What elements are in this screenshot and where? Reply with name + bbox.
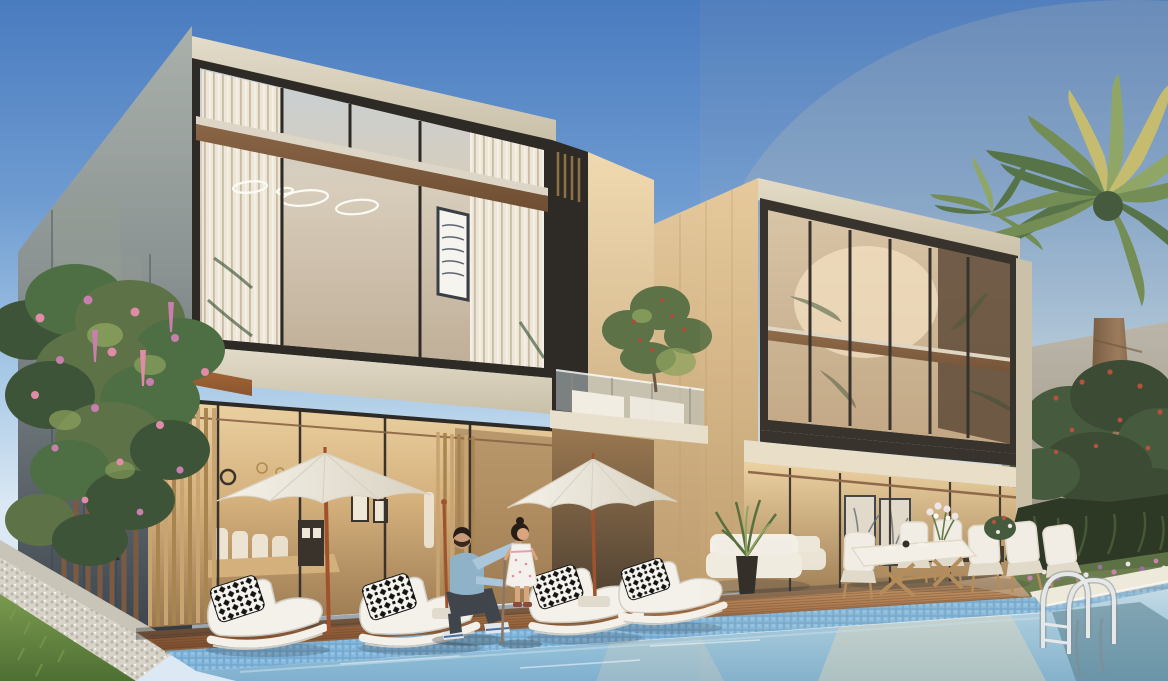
wall-artwork	[438, 208, 468, 300]
warm-light-overlay	[700, 0, 1168, 681]
white-vase	[424, 492, 434, 548]
interior-cabinet	[298, 520, 324, 566]
villa-render-image	[0, 0, 1168, 681]
curtains-right	[470, 132, 544, 368]
girl-face	[517, 528, 529, 540]
umbrella-base	[578, 596, 610, 607]
scene-canvas	[0, 0, 1168, 681]
villa-left-ground-floor	[148, 398, 560, 628]
framed-photo	[352, 495, 368, 521]
